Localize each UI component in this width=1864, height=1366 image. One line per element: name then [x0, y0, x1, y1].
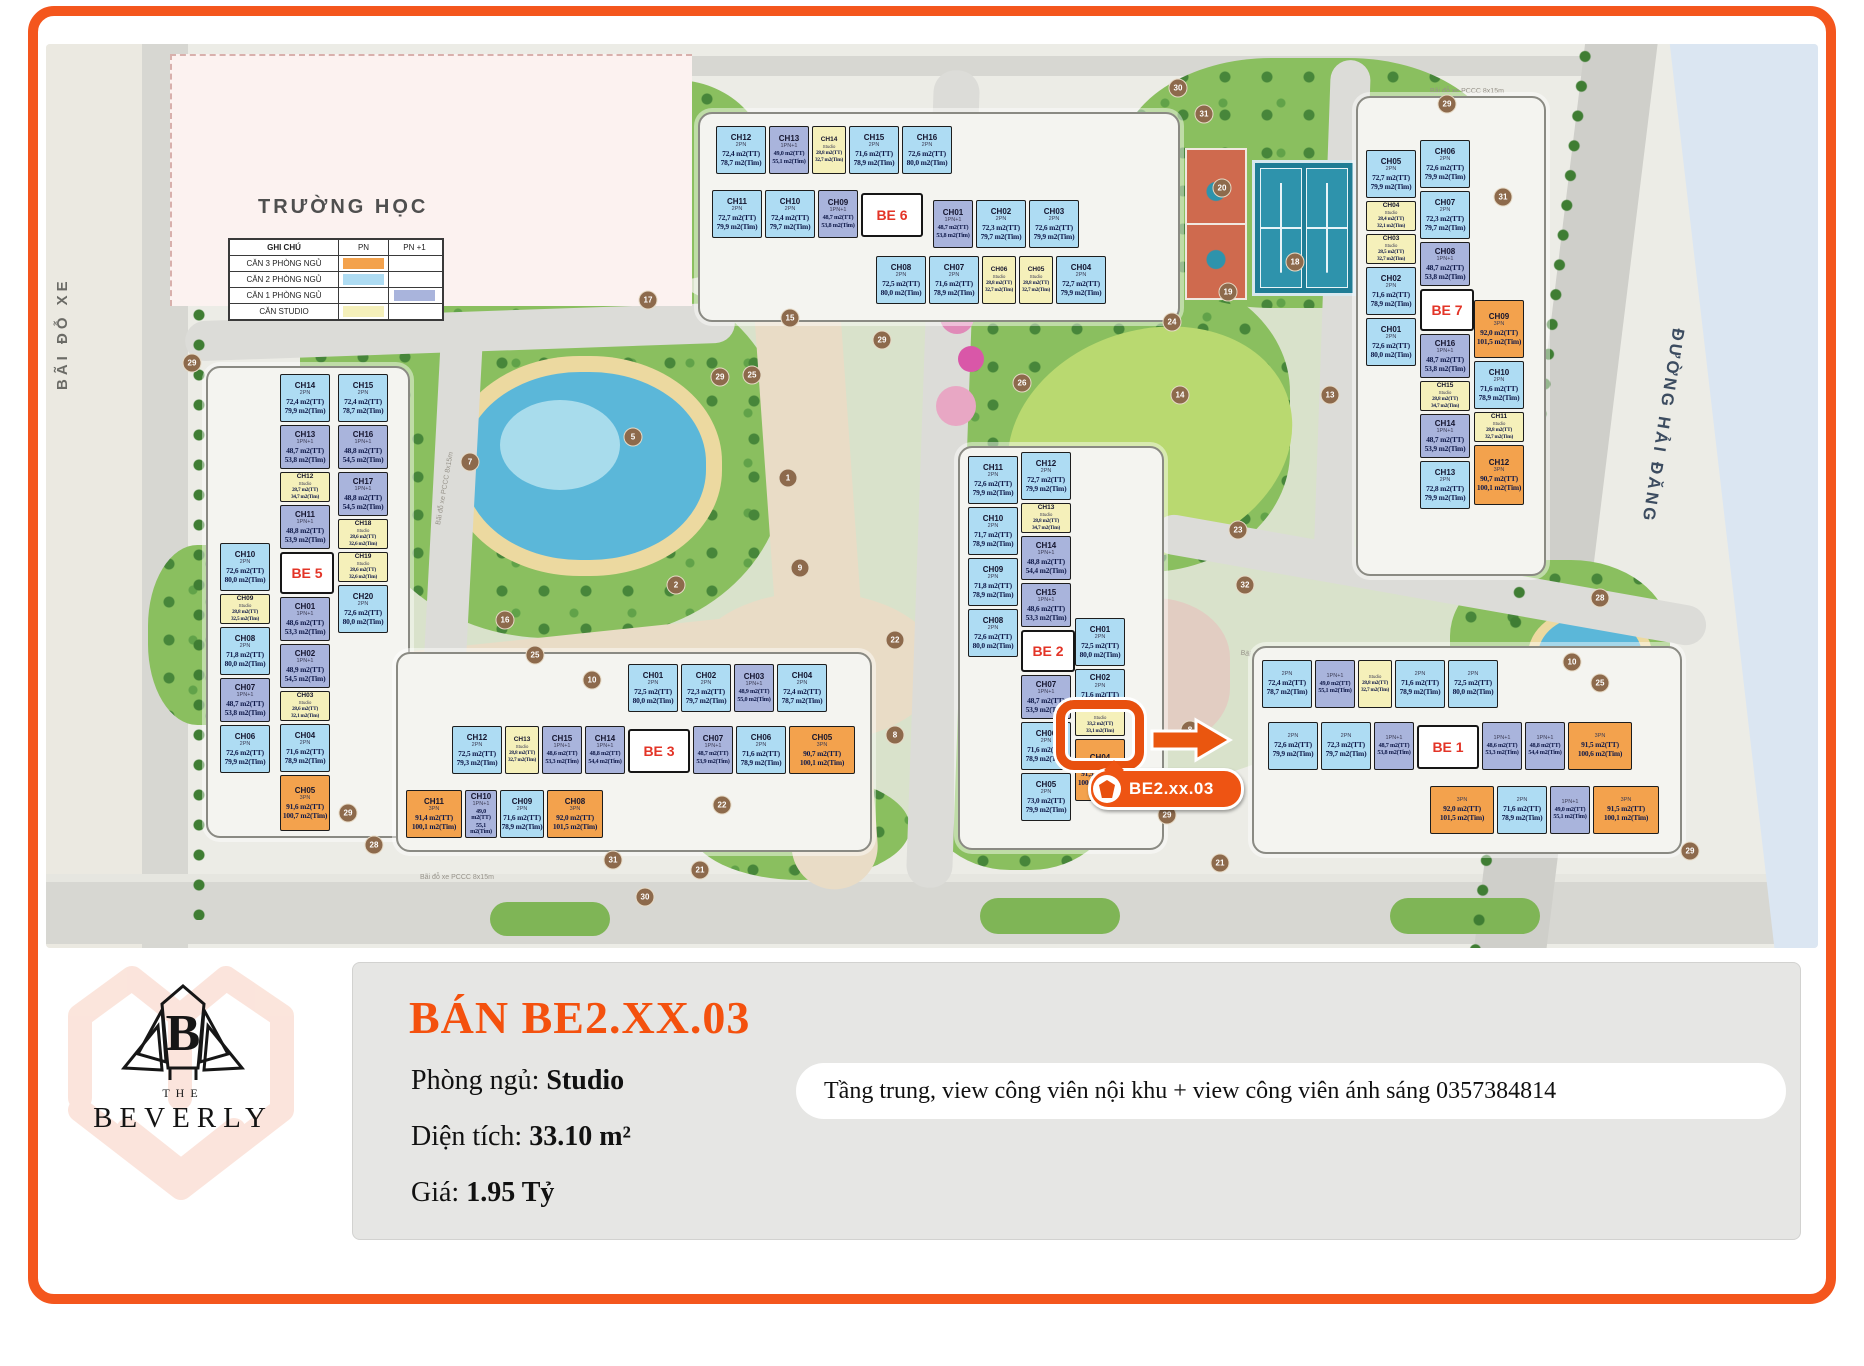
unit-card-ch04: CH042PN71,6 m2(TT)78,9 m2(Tim)	[280, 724, 330, 772]
unit-card: 1PN+148,6 m2(TT)53,3 m2(Tim)	[1482, 722, 1522, 770]
map-marker-24: 24	[1163, 313, 1182, 332]
unit-card-ch06: CH062PN71,6 m2(TT)78,9 m2(Tim)	[736, 726, 786, 774]
be6-units-row2-left: CH112PN72,7 m2(TT)79,9 m2(Tim)CH102PN72,…	[712, 190, 923, 238]
unit-card-ch13: CH13Studio28,8 m2(TT)32,7 m2(Tim)	[505, 726, 539, 774]
pccc-label: Bãi đỗ xe PCCC 8x15m	[420, 874, 494, 881]
price-value: 1.95 Tỷ	[466, 1177, 554, 1208]
map-marker-31: 31	[604, 851, 623, 870]
be1-units-row1: 2PN72,4 m2(TT)78,7 m2(Tim)1PN+149,0 m2(T…	[1262, 660, 1498, 708]
unit-card-ch09: CH092PN71,6 m2(TT)78,9 m2(Tim)	[500, 790, 544, 838]
unit-card-ch05: CH053PN91,6 m2(TT)100,7 m2(Tim)	[280, 775, 330, 831]
map-marker-29: 29	[873, 331, 892, 350]
legend-row-3pn: CĂN 3 PHÒNG NGỦ	[230, 255, 442, 271]
unit-card-ch09: CH093PN92,0 m2(TT)101,5 m2(Tim)	[1474, 300, 1524, 358]
unit-card-ch10: CH102PN71,6 m2(TT)78,9 m2(Tim)	[1474, 361, 1524, 409]
map-marker-28: 28	[1591, 589, 1610, 608]
unit-card-ch05: CH052PN73,0 m2(TT)79,9 m2(Tim)	[1021, 773, 1071, 821]
pccc-label: Bãi đỗ xe PCCC 8x15m	[1430, 88, 1504, 95]
unit-card-ch12: CH122PN72,5 m2(TT)79,3 m2(Tim)	[452, 726, 502, 774]
map-marker-32: 32	[1236, 576, 1255, 595]
unit-card-ch14: CH141PN+148,7 m2(TT)53,9 m2(Tim)	[1420, 414, 1470, 458]
unit-card-ch02: CH022PN71,6 m2(TT)	[1075, 669, 1125, 703]
unit-card-ch07: CH072PN71,6 m2(TT)78,9 m2(Tim)	[929, 256, 979, 304]
building-label-be-3: BE 3	[628, 729, 690, 773]
unit-card: 2PN72,4 m2(TT)78,7 m2(Tim)	[1262, 660, 1312, 708]
unit-card-ch11: CH112PN72,6 m2(TT)79,9 m2(Tim)	[968, 456, 1018, 504]
unit-card-ch11: CH111PN+148,8 m2(TT)53,9 m2(Tim)	[280, 505, 330, 549]
unit-card-ch12: CH12Studio28,7 m2(TT)34,7 m2(Tim)	[280, 472, 330, 502]
legend-label-1pn: CĂN 1 PHÒNG NGỦ	[230, 288, 338, 303]
unit-card-ch05: CH053PN90,7 m2(TT)100,1 m2(Tim)	[789, 726, 855, 774]
unit-card-ch18: CH18Studio28,6 m2(TT)32,6 m2(Tim)	[338, 519, 388, 549]
median-green-2	[980, 898, 1120, 934]
map-marker-14: 14	[1171, 386, 1190, 405]
legend-row-2pn: CĂN 2 PHÒNG NGỦ	[230, 271, 442, 287]
unit-card-ch15: CH152PN71,6 m2(TT)78,9 m2(Tim)	[849, 126, 899, 174]
unit-card-ch01: CH012PN72,5 m2(TT)80,0 m2(Tim)	[628, 664, 678, 712]
map-marker-26: 26	[1013, 374, 1032, 393]
unit-card-ch15: CH152PN72,4 m2(TT)78,7 m2(Tim)	[338, 374, 388, 422]
unit-card: 3PN91,5 m2(TT)100,6 m2(Tim)	[1568, 722, 1632, 770]
bedrooms-row: Phòng ngủ: Studio	[411, 1065, 624, 1097]
unit-card-ch15: CH151PN+148,6 m2(TT)53,3 m2(Tim)	[1021, 583, 1071, 627]
map-marker-28: 28	[365, 836, 384, 855]
unit-card-ch19: CH19Studio28,6 m2(TT)32,6 m2(Tim)	[338, 552, 388, 582]
map-marker-22: 22	[713, 796, 732, 815]
unit-card-ch13: CH131PN+149,0 m2(TT)55,1 m2(Tim)	[769, 126, 809, 174]
be7-units-col-a: CH052PN72,7 m2(TT)79,9 m2(Tim)CH04Studio…	[1366, 150, 1416, 366]
map-marker-2: 2	[667, 576, 686, 595]
map-marker-31: 31	[1195, 105, 1214, 124]
note-bubble: Tầng trung, view công viên nội khu + vie…	[796, 1063, 1786, 1119]
unit-card: 3PN92,0 m2(TT)101,5 m2(Tim)	[1430, 786, 1494, 834]
school-label: TRƯỜNG HỌC	[258, 196, 428, 219]
map-marker-29: 29	[1438, 95, 1457, 114]
unit-card-ch16: CH161PN+148,7 m2(TT)53,8 m2(Tim)	[1420, 334, 1470, 378]
legend-row-1pn: CĂN 1 PHÒNG NGỦ	[230, 287, 442, 303]
unit-card-ch10: CH102PN72,6 m2(TT)80,0 m2(Tim)	[220, 543, 270, 591]
map-marker-31: 31	[1494, 188, 1513, 207]
unit-card: 1PN+148,8 m2(TT)54,4 m2(Tim)	[1525, 722, 1565, 770]
unit-card-ch13: CH132PN72,8 m2(TT)79,9 m2(Tim)	[1420, 461, 1470, 509]
legend-swatch-3pn	[343, 258, 383, 268]
unit-card-ch04: CH04Studio28,4 m2(TT)32,1 m2(Tim)	[1366, 201, 1416, 231]
map-marker-25: 25	[526, 646, 545, 665]
unit-card-ch07: CH072PN72,3 m2(TT)79,7 m2(Tim)	[1420, 191, 1470, 239]
legend-swatch-2pn	[343, 274, 383, 284]
be2-units-col-a: CH112PN72,6 m2(TT)79,9 m2(Tim)CH102PN71,…	[968, 456, 1018, 657]
the-beverly-logo: B THE BEVERLY	[58, 958, 308, 1220]
legend-header-pn: PN	[338, 240, 388, 255]
map-marker-25: 25	[743, 366, 762, 385]
be5-units-col-a: CH102PN72,6 m2(TT)80,0 m2(Tim)CH09Studio…	[220, 543, 270, 773]
unit-card-ch12: CH122PN72,4 m2(TT)78,7 m2(Tim)	[716, 126, 766, 174]
map-marker-29: 29	[339, 804, 358, 823]
unit-card-ch07: CH071PN+148,7 m2(TT)53,9 m2(Tim)	[693, 726, 733, 774]
unit-card-ch14: CH141PN+148,8 m2(TT)54,4 m2(Tim)	[1021, 536, 1071, 580]
map-marker-22: 22	[886, 631, 905, 650]
unit-card: 1PN+148,7 m2(TT)53,8 m2(Tim)	[1374, 722, 1414, 770]
logo-the: THE	[58, 1086, 308, 1101]
map-marker-15: 15	[781, 309, 800, 328]
unit-card-ch14: CH14Studio28,8 m2(TT)32,7 m2(Tim)	[812, 126, 846, 174]
unit-card-ch03: CH032PN72,6 m2(TT)79,9 m2(Tim)	[1029, 200, 1079, 248]
unit-card-ch01: CH011PN+148,7 m2(TT)53,8 m2(Tim)	[933, 200, 973, 248]
map-marker-19: 19	[1219, 283, 1238, 302]
unit-card: 2PN72,5 m2(TT)80,0 m2(Tim)	[1448, 660, 1498, 708]
price-row: Giá: 1.95 Tỷ	[411, 1177, 554, 1209]
map-marker-17: 17	[639, 291, 658, 310]
be3-units-row1: CH012PN72,5 m2(TT)80,0 m2(Tim)CH022PN72,…	[628, 664, 827, 712]
unit-card-ch03: CH03Studio28,5 m2(TT)32,7 m2(Tim)	[1366, 234, 1416, 264]
unit-card-ch04: CH042PN72,4 m2(TT)78,7 m2(Tim)	[777, 664, 827, 712]
be6-units-row2-right: CH011PN+148,7 m2(TT)53,8 m2(Tim)CH022PN7…	[933, 200, 1079, 248]
unit-card-ch02: CH022PN71,6 m2(TT)78,9 m2(Tim)	[1366, 267, 1416, 315]
unit-card: Studio28,8 m2(TT)32,7 m2(Tim)	[1358, 660, 1392, 708]
parking-strip	[46, 44, 142, 948]
map-marker-8: 8	[886, 726, 905, 745]
playground-dot-2	[958, 346, 984, 372]
unit-card-ch11: CH11Studio28,8 m2(TT)32,7 m2(Tim)	[1474, 412, 1524, 442]
legend-swatch-1pn1	[394, 290, 436, 300]
unit-card-ch20: CH202PN72,6 m2(TT)80,0 m2(Tim)	[338, 585, 388, 633]
map-marker-18: 18	[1286, 253, 1305, 272]
unit-card: 2PN72,3 m2(TT)79,7 m2(Tim)	[1321, 722, 1371, 770]
unit-card: 2PN72,6 m2(TT)79,9 m2(Tim)	[1268, 722, 1318, 770]
unit-card-ch08: CH081PN+148,7 m2(TT)53,8 m2(Tim)	[1420, 242, 1470, 286]
be6-units-row3: CH082PN72,5 m2(TT)80,0 m2(Tim)CH072PN71,…	[876, 256, 1106, 304]
be3-units-row3: CH113PN91,4 m2(TT)100,1 m2(Tim)CH101PN+1…	[406, 790, 603, 838]
unit-card-ch11: CH113PN91,4 m2(TT)100,1 m2(Tim)	[406, 790, 462, 838]
unit-card-ch05: CH05Studio28,8 m2(TT)32,7 m2(Tim)	[1019, 256, 1053, 304]
unit-card-ch14: CH141PN+148,8 m2(TT)54,4 m2(Tim)	[585, 726, 625, 774]
unit-card: 1PN+149,0 m2(TT)55,1 m2(Tim)	[1550, 786, 1590, 834]
unit-card: 1PN+149,0 m2(TT)55,1 m2(Tim)	[1315, 660, 1355, 708]
unit-card-ch03: CH03Studio28,6 m2(TT)32,1 m2(Tim)	[280, 691, 330, 721]
be3-units-row2: CH122PN72,5 m2(TT)79,3 m2(Tim)CH13Studio…	[452, 726, 855, 774]
map-marker-5: 5	[624, 428, 643, 447]
unit-card-ch08: CH083PN92,0 m2(TT)101,5 m2(Tim)	[547, 790, 603, 838]
map-marker-30: 30	[1169, 79, 1188, 98]
map-marker-30: 30	[636, 888, 655, 907]
legend-label-studio: CĂN STUDIO	[230, 304, 338, 319]
unit-card-ch15: CH15Studio28,8 m2(TT)34,7 m2(Tim)	[1420, 381, 1470, 411]
unit-card-ch09: CH09Studio28,8 m2(TT)32,5 m2(Tim)	[220, 594, 270, 624]
legend-table: GHI CHÚ PN PN +1 CĂN 3 PHÒNG NGỦ CĂN 2 P…	[228, 238, 444, 321]
legend-swatch-studio	[343, 306, 383, 316]
unit-callout-label: BE2.xx.03	[1129, 779, 1214, 799]
unit-card-ch12: CH123PN90,7 m2(TT)100,1 m2(Tim)	[1474, 445, 1524, 505]
be7-units-col-c: CH093PN92,0 m2(TT)101,5 m2(Tim)CH102PN71…	[1474, 300, 1524, 505]
unit-card-ch06: CH062PN72,6 m2(TT)79,9 m2(Tim)	[1420, 140, 1470, 188]
street-name-label: ĐƯỜNG HẢI ĐĂNG	[1637, 327, 1688, 525]
highlight-arrow-icon	[1150, 717, 1234, 768]
unit-card-ch01: CH011PN+148,6 m2(TT)53,3 m2(Tim)	[280, 597, 330, 641]
unit-card-ch06: CH062PN72,6 m2(TT)79,9 m2(Tim)	[220, 725, 270, 773]
building-label-be-6: BE 6	[861, 193, 923, 237]
legend-label-3pn: CĂN 3 PHÒNG NGỦ	[230, 256, 338, 271]
area-row: Diện tích: 33.10 m²	[411, 1121, 631, 1153]
playground-dot-3	[936, 386, 976, 426]
building-label-be-7: BE 7	[1420, 289, 1474, 331]
legend-header-note: GHI CHÚ	[230, 240, 338, 255]
map-marker-29: 29	[183, 354, 202, 373]
tennis-courts	[1252, 160, 1356, 296]
be1-units-row3: 3PN92,0 m2(TT)101,5 m2(Tim)2PN71,6 m2(TT…	[1430, 786, 1659, 834]
map-marker-9: 9	[791, 559, 810, 578]
price-label: Giá:	[411, 1177, 459, 1208]
unit-card-ch16: CH162PN72,6 m2(TT)80,0 m2(Tim)	[902, 126, 952, 174]
map-marker-16: 16	[496, 611, 515, 630]
project-badge-icon	[1093, 775, 1121, 803]
median-green-1	[490, 902, 610, 936]
unit-card-ch01: CH012PN72,5 m2(TT)80,0 m2(Tim)	[1075, 618, 1125, 666]
unit-card-ch02: CH021PN+148,9 m2(TT)54,5 m2(Tim)	[280, 644, 330, 688]
map-marker-20: 20	[1213, 179, 1232, 198]
map-marker-25: 25	[1591, 674, 1610, 693]
page: ĐƯỜNG HẢI ĐĂNG TRƯỜNG HỌC BÃI ĐỖ XE GHI …	[0, 0, 1864, 1366]
unit-card-ch02: CH022PN72,3 m2(TT)79,7 m2(Tim)	[976, 200, 1026, 248]
unit-card-ch02: CH022PN72,3 m2(TT)79,7 m2(Tim)	[681, 664, 731, 712]
unit-card-ch10: CH101PN+149,0 m2(TT)55,1 m2(Tim)	[465, 790, 497, 838]
building-label-be-1: BE 1	[1417, 725, 1479, 769]
site-map: ĐƯỜNG HẢI ĐĂNG TRƯỜNG HỌC BÃI ĐỖ XE GHI …	[46, 44, 1818, 948]
map-marker-10: 10	[1563, 653, 1582, 672]
unit-callout: BE2.xx.03	[1088, 768, 1244, 810]
unit-card-ch13: CH131PN+148,7 m2(TT)53,8 m2(Tim)	[280, 425, 330, 469]
unit-card-ch08: CH082PN72,6 m2(TT)80,0 m2(Tim)	[968, 609, 1018, 657]
map-marker-21: 21	[691, 861, 710, 880]
be7-units-col-b: CH062PN72,6 m2(TT)79,9 m2(Tim)CH072PN72,…	[1420, 140, 1474, 509]
unit-card-ch16: CH161PN+148,8 m2(TT)54,5 m2(Tim)	[338, 425, 388, 469]
unit-card-ch06: CH06Studio28,8 m2(TT)32,7 m2(Tim)	[982, 256, 1016, 304]
be5-units-col-c: CH152PN72,4 m2(TT)78,7 m2(Tim)CH161PN+14…	[338, 374, 388, 633]
unit-card-ch17: CH171PN+148,8 m2(TT)54,5 m2(Tim)	[338, 472, 388, 516]
unit-card-ch04: CH042PN72,7 m2(TT)79,9 m2(Tim)	[1056, 256, 1106, 304]
unit-card-ch10: CH102PN72,4 m2(TT)79,7 m2(Tim)	[765, 190, 815, 238]
map-marker-21: 21	[1211, 854, 1230, 873]
area-label: Diện tích:	[411, 1121, 522, 1152]
bedrooms-value: Studio	[546, 1065, 624, 1096]
unit-card-ch09: CH091PN+148,7 m2(TT)53,8 m2(Tim)	[818, 190, 858, 238]
map-marker-29: 29	[1681, 842, 1700, 861]
unit-card-ch15: CH151PN+148,6 m2(TT)53,3 m2(Tim)	[542, 726, 582, 774]
be5-units-col-b: CH142PN72,4 m2(TT)79,9 m2(Tim)CH131PN+14…	[280, 374, 334, 831]
unit-card-ch03: CH031PN+148,9 m2(TT)55,0 m2(Tim)	[734, 664, 774, 712]
unit-card-ch07: CH071PN+148,7 m2(TT)53,8 m2(Tim)	[220, 678, 270, 722]
pond-lagoon	[500, 400, 620, 490]
map-marker-13: 13	[1321, 386, 1340, 405]
highlight-ring	[1056, 700, 1144, 770]
unit-card-ch09: CH092PN71,8 m2(TT)78,9 m2(Tim)	[968, 558, 1018, 606]
unit-card-ch11: CH112PN72,7 m2(TT)79,9 m2(Tim)	[712, 190, 762, 238]
unit-card-ch01: CH012PN72,6 m2(TT)80,0 m2(Tim)	[1366, 318, 1416, 366]
building-label-be-5: BE 5	[280, 552, 334, 594]
listing-panel: BÁN BE2.XX.03 Phòng ngủ: Studio Diện tíc…	[352, 962, 1801, 1240]
be6-units-row1: CH122PN72,4 m2(TT)78,7 m2(Tim)CH131PN+14…	[716, 126, 952, 174]
unit-card-ch10: CH102PN71,7 m2(TT)78,9 m2(Tim)	[968, 507, 1018, 555]
unit-card-ch12: CH122PN72,7 m2(TT)79,9 m2(Tim)	[1021, 452, 1071, 500]
map-marker-7: 7	[461, 453, 480, 472]
building-label-be-2: BE 2	[1021, 630, 1075, 672]
map-marker-29: 29	[711, 368, 730, 387]
unit-card-ch05: CH052PN72,7 m2(TT)79,9 m2(Tim)	[1366, 150, 1416, 198]
be1-units-row2: 2PN72,6 m2(TT)79,9 m2(Tim)2PN72,3 m2(TT)…	[1268, 722, 1632, 770]
logo-monogram: B	[166, 1005, 201, 1062]
listing-title: BÁN BE2.XX.03	[409, 991, 750, 1044]
legend-row-studio: CĂN STUDIO	[230, 303, 442, 319]
unit-card: 2PN71,6 m2(TT)78,9 m2(Tim)	[1497, 786, 1547, 834]
unit-card-ch14: CH142PN72,4 m2(TT)79,9 m2(Tim)	[280, 374, 330, 422]
parking-label: BÃI ĐỖ XE	[54, 220, 71, 390]
bedrooms-label: Phòng ngủ:	[411, 1065, 539, 1096]
basketball-court	[1185, 148, 1247, 300]
legend-header-pn1: PN +1	[388, 240, 440, 255]
unit-card: 3PN91,5 m2(TT)100,1 m2(Tim)	[1593, 786, 1659, 834]
map-marker-10: 10	[583, 671, 602, 690]
area-value: 33.10 m²	[529, 1121, 631, 1152]
unit-card-ch13: CH13Studio28,8 m2(TT)34,7 m2(Tim)	[1021, 503, 1071, 533]
legend-header-row: GHI CHÚ PN PN +1	[230, 240, 442, 255]
unit-card-ch08: CH082PN71,8 m2(TT)80,0 m2(Tim)	[220, 627, 270, 675]
map-marker-1: 1	[779, 469, 798, 488]
unit-card: 2PN71,6 m2(TT)78,9 m2(Tim)	[1395, 660, 1445, 708]
legend-label-2pn: CĂN 2 PHÒNG NGỦ	[230, 272, 338, 287]
map-marker-23: 23	[1229, 521, 1248, 540]
unit-card-ch08: CH082PN72,5 m2(TT)80,0 m2(Tim)	[876, 256, 926, 304]
tennis-court-right	[1306, 168, 1348, 288]
logo-name: BEVERLY	[58, 1102, 308, 1135]
